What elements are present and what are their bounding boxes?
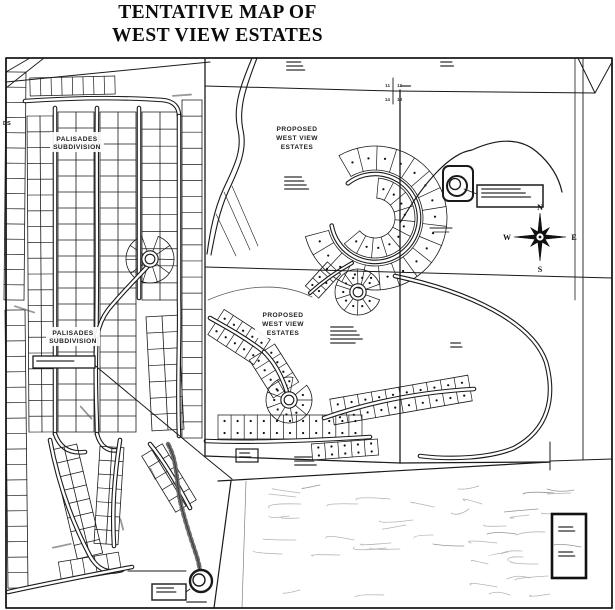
- palisades-subdivision-upper-label: PALISADES: [56, 136, 97, 143]
- compass-rose-icon: [514, 213, 566, 261]
- compass-north-label: N: [537, 203, 543, 212]
- illegible-annotations: [284, 61, 463, 348]
- south-parcel: [214, 442, 612, 608]
- compass-west-label: W: [503, 233, 511, 242]
- section-number-sw: 14: [385, 97, 391, 102]
- proposed-west-view-estates-upper-label: ESTATES: [281, 144, 314, 151]
- section-number-ne: 12: [397, 83, 403, 88]
- palisades-subdivision-lower-label: PALISADES: [52, 330, 93, 337]
- proposed-west-view-estates-upper-label: PROPOSED: [277, 126, 318, 133]
- compass-east-label: E: [571, 233, 576, 242]
- section-number-se: 13: [397, 97, 403, 102]
- map-labels: PALISADES SUBDIVISION PALISADES SUBDIVIS…: [3, 83, 577, 345]
- legend-box: [552, 514, 586, 578]
- edge-street-text: DS: [3, 121, 11, 127]
- scanned-map-page: TENTATIVE MAP OF WEST VIEW ESTATES PALIS…: [0, 0, 615, 610]
- palisades-subdivision-lower-label: SUBDIVISION: [49, 338, 97, 345]
- compass-south-label: S: [538, 265, 543, 274]
- existing-water-tank: [152, 570, 212, 603]
- proposed-west-view-estates-upper-label: WEST VIEW: [276, 135, 318, 142]
- map-canvas: PALISADES SUBDIVISION PALISADES SUBDIVIS…: [0, 0, 615, 610]
- proposed-west-view-estates-lower-label: WEST VIEW: [262, 321, 304, 328]
- northeast-area: [400, 141, 562, 232]
- palisades-subdivision-upper-label: SUBDIVISION: [53, 144, 101, 151]
- proposed-west-view-estates-lower-label: PROPOSED: [263, 312, 304, 319]
- creek: [207, 58, 312, 300]
- section-number-nw: 11: [385, 83, 390, 88]
- note-box: [236, 449, 258, 462]
- proposed-west-view-estates-lower-label: ESTATES: [267, 330, 300, 337]
